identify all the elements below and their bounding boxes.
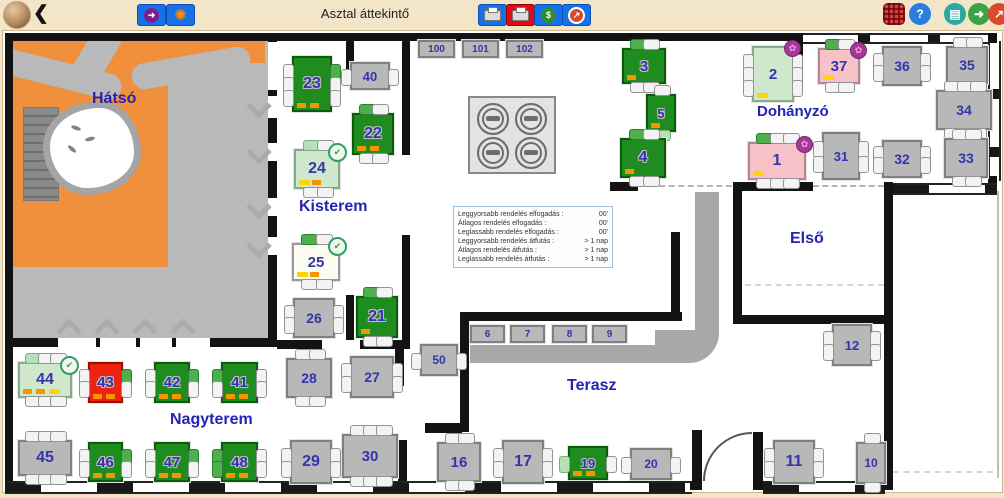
chair (864, 433, 881, 444)
chair (458, 480, 475, 491)
check-badge-icon: ✔ (328, 143, 347, 162)
chair (283, 90, 294, 107)
table-41[interactable]: 41 (221, 362, 258, 403)
table-101[interactable]: 101 (462, 40, 499, 58)
table-number: 100 (420, 42, 453, 56)
wall (692, 430, 702, 483)
order-mark-orange (36, 389, 45, 394)
chair (388, 69, 399, 86)
exit-door-icon[interactable]: ➜ (968, 3, 990, 25)
room-label-terasz: Terasz (567, 377, 617, 395)
printer-icon (484, 10, 501, 21)
table-number: 32 (884, 142, 920, 176)
chair (970, 81, 987, 92)
order-mark-orange (312, 180, 321, 185)
chair (212, 461, 223, 478)
table-number: 6 (472, 327, 503, 341)
chair (317, 187, 334, 198)
trend-circle-icon: ↗ (568, 7, 585, 24)
table-number: 8 (554, 327, 585, 341)
order-stats-box: Leggyorsabb rendelés elfogadás :00'Átlag… (453, 206, 613, 268)
order-mark-orange (586, 471, 595, 476)
table-32[interactable]: 32 (882, 140, 922, 178)
table-number: 27 (352, 358, 392, 396)
chair (79, 381, 90, 398)
chair (121, 381, 132, 398)
table-number: 36 (884, 48, 920, 84)
order-mark-orange (627, 75, 636, 80)
order-mark-orange (172, 473, 181, 478)
chair (456, 353, 467, 370)
user-avatar[interactable] (3, 1, 31, 29)
table-37[interactable]: ✿37 (818, 48, 860, 84)
chair (813, 461, 824, 478)
chair (256, 461, 267, 478)
table-46[interactable]: 46 (88, 442, 123, 482)
table-31[interactable]: 31 (822, 132, 860, 180)
back-chevron-icon: ❮ (33, 3, 49, 24)
page-title: Asztal áttekintő (270, 6, 460, 21)
stats-trend-icon[interactable]: ↗ (988, 3, 1004, 25)
wall (733, 315, 893, 324)
table-23[interactable]: 23 (292, 56, 332, 112)
table-2[interactable]: ✿2 (752, 46, 794, 102)
chair (458, 433, 475, 444)
walkway (655, 330, 719, 363)
door-arrow-icon: ➜ (144, 8, 159, 23)
table-number: 20 (632, 450, 670, 478)
chair (309, 396, 326, 407)
reservation-badge-icon: ✿ (796, 136, 813, 153)
order-mark-yellow (299, 180, 310, 185)
table-21[interactable]: 21 (356, 296, 398, 338)
chair (376, 336, 393, 347)
toolbar: ❮ ➜ ✺ Asztal áttekintő $ ↗ ? ▤ ➜ ↗ (0, 0, 1004, 29)
exit-arrow-glyph: ➜ (974, 7, 984, 21)
order-mark-orange (297, 103, 306, 108)
table-number: 30 (344, 436, 396, 476)
table-33[interactable]: 33 (944, 138, 988, 178)
chair (559, 456, 570, 473)
rosette-icon: ✺ (174, 8, 187, 23)
chair (79, 461, 90, 478)
chair (783, 178, 800, 189)
table-12[interactable]: 12 (832, 324, 872, 366)
chair (873, 65, 884, 82)
order-mark-yellow (753, 171, 764, 176)
walkway (470, 345, 660, 363)
badge-button[interactable]: ✺ (166, 4, 195, 26)
chair (284, 317, 295, 334)
table-45[interactable]: 45 (18, 440, 72, 476)
order-mark-orange (172, 394, 181, 399)
chair (392, 376, 403, 393)
passage-dashes (813, 185, 884, 187)
chair (376, 476, 393, 487)
order-mark-orange (226, 394, 235, 399)
chair (920, 157, 931, 174)
device-glyph: ▤ (949, 7, 960, 21)
table-number: 40 (352, 64, 388, 88)
stat-row: Átlagos rendelés elfogadás :00' (458, 219, 608, 228)
table-6[interactable]: 6 (470, 325, 505, 343)
order-mark-orange (239, 473, 248, 478)
check-badge-icon: ✔ (328, 237, 347, 256)
table-16[interactable]: 16 (437, 442, 481, 482)
table-48[interactable]: 48 (221, 442, 258, 482)
passage-dashes (745, 284, 884, 286)
table-7[interactable]: 7 (510, 325, 545, 343)
table-number: 35 (948, 48, 986, 82)
chair (838, 82, 855, 93)
order-mark-orange (226, 473, 235, 478)
stat-row: Átlagos rendelés átfutás :> 1 nap (458, 246, 608, 255)
chair (670, 457, 681, 474)
reservation-badge-icon: ✿ (850, 42, 867, 59)
chair (873, 157, 884, 174)
table-22[interactable]: 22 (352, 113, 394, 155)
table-36[interactable]: 36 (882, 46, 922, 86)
chair (372, 104, 389, 115)
wall (733, 182, 742, 324)
help-icon[interactable]: ? (909, 3, 931, 25)
table-8[interactable]: 8 (552, 325, 587, 343)
wall (988, 33, 997, 43)
chair (965, 129, 982, 140)
room-label-elso: Első (790, 230, 824, 248)
table-43[interactable]: 43 (88, 362, 123, 403)
chair (309, 349, 326, 360)
transfer-button[interactable]: ➜ (137, 4, 166, 26)
table-11[interactable]: 11 (773, 440, 815, 484)
chair (643, 39, 660, 50)
table-17[interactable]: 17 (502, 440, 544, 484)
table-47[interactable]: 47 (154, 442, 190, 482)
wall (671, 232, 680, 321)
table-number: 29 (292, 442, 330, 482)
chair (858, 156, 869, 173)
chair (330, 461, 341, 478)
table-29[interactable]: 29 (290, 440, 332, 484)
chair (643, 176, 660, 187)
entrance-door-opening (702, 481, 753, 490)
passage-dashes (893, 471, 993, 473)
table-100[interactable]: 100 (418, 40, 455, 58)
wall (5, 33, 13, 490)
table-number: 17 (504, 442, 542, 482)
table-25[interactable]: ✔25 (292, 243, 340, 281)
wall (425, 423, 462, 433)
window-wall (5, 481, 692, 494)
chair (823, 344, 834, 361)
order-mark-orange (370, 146, 379, 151)
reservation-badge-icon: ✿ (784, 40, 801, 57)
order-mark-yellow (297, 272, 308, 277)
order-mark-orange (310, 103, 319, 108)
printer-icon (512, 10, 529, 21)
chair (864, 482, 881, 493)
table-9[interactable]: 9 (592, 325, 627, 343)
chair (281, 461, 292, 478)
chair (212, 381, 223, 398)
table-number: 33 (946, 140, 986, 176)
order-mark-orange (361, 329, 370, 334)
table-number: 31 (824, 134, 858, 178)
print-blue-button[interactable] (478, 4, 507, 26)
stat-row: Leggyorsabb rendelés átfutás :> 1 nap (458, 237, 608, 246)
chair (50, 431, 67, 442)
order-mark-orange (106, 394, 115, 399)
wall (460, 312, 469, 432)
chair (188, 461, 199, 478)
wall (460, 312, 682, 321)
stove-icon (468, 96, 556, 174)
chart-button[interactable]: ↗ (562, 4, 591, 26)
chair (376, 425, 393, 436)
chair (606, 456, 617, 473)
chair (965, 176, 982, 187)
question-glyph: ? (916, 7, 923, 21)
order-mark-orange (239, 394, 248, 399)
order-mark-orange (310, 272, 319, 277)
table-10[interactable]: 10 (856, 442, 886, 484)
stat-row: Leglassabb rendelés átfutás :> 1 nap (458, 255, 608, 264)
trend-glyph: ↗ (994, 7, 1004, 21)
table-1[interactable]: ✿1 (748, 142, 806, 180)
floorplan: Hátsó (0, 0, 1004, 498)
table-102[interactable]: 102 (506, 40, 543, 58)
table-number: 45 (20, 442, 70, 474)
chair (372, 153, 389, 164)
wall (753, 432, 763, 490)
order-mark-orange (625, 169, 634, 174)
chair (813, 156, 824, 173)
order-mark-orange (651, 123, 660, 128)
table-number: 9 (594, 327, 625, 341)
chair (316, 279, 333, 290)
chair (792, 80, 803, 97)
table-24[interactable]: ✔24 (294, 149, 340, 189)
chair (145, 461, 156, 478)
order-mark-yellow (757, 93, 768, 98)
chair (493, 461, 504, 478)
room-label-dohanyzo: Dohányzó (757, 103, 829, 120)
table-number: 101 (464, 42, 497, 56)
order-mark-orange (159, 473, 168, 478)
room-label-nagyterem: Nagyterem (170, 411, 253, 429)
order-mark-orange (93, 473, 102, 478)
table-number: 11 (775, 442, 813, 482)
order-mark-yellow (823, 75, 834, 80)
chair (643, 129, 660, 140)
chair (376, 287, 393, 298)
cash-button[interactable]: $ (534, 4, 563, 26)
chair (50, 474, 67, 485)
door-opening (268, 42, 277, 90)
table-19[interactable]: 19 (568, 446, 608, 480)
chair (870, 344, 881, 361)
room-label-hatso: Hátsó (92, 90, 136, 108)
stat-row: Leggyorsabb rendelés elfogadás :00' (458, 210, 608, 219)
table-number: 7 (512, 327, 543, 341)
order-mark-orange (106, 473, 115, 478)
chair (333, 317, 344, 334)
chair (764, 461, 775, 478)
chair (341, 69, 352, 86)
print-red-button[interactable] (506, 4, 535, 26)
pond (43, 101, 141, 195)
chair (188, 381, 199, 398)
money-bag-icon: $ (541, 8, 556, 23)
table-number: 26 (295, 300, 333, 336)
chair (50, 396, 67, 407)
table-26[interactable]: 26 (293, 298, 335, 338)
table-35[interactable]: 35 (946, 46, 988, 84)
order-mark-orange (357, 146, 366, 151)
table-34[interactable]: 34 (936, 90, 992, 130)
room-label-kisterem: Kisterem (299, 198, 367, 216)
order-mark-orange (573, 471, 582, 476)
check-badge-icon: ✔ (60, 356, 79, 375)
devices-icon[interactable]: ▤ (944, 3, 966, 25)
table-grid-icon[interactable] (883, 3, 905, 25)
stat-row: Leglassabb rendelés elfogadás :00' (458, 228, 608, 237)
chair (542, 461, 553, 478)
table-number: 34 (938, 92, 990, 128)
chair (920, 65, 931, 82)
wall (402, 235, 410, 348)
table-number: 50 (422, 346, 456, 374)
table-5[interactable]: 5 (646, 94, 676, 132)
chair (121, 461, 132, 478)
order-mark-orange (93, 394, 102, 399)
order-mark-yellow (49, 389, 60, 394)
walkway (695, 192, 719, 332)
table-number: 102 (508, 42, 541, 56)
chair (256, 381, 267, 398)
chair (330, 90, 341, 107)
order-mark-orange (23, 389, 32, 394)
table-4[interactable]: 4 (620, 138, 666, 178)
chair (411, 353, 422, 370)
table-28[interactable]: 28 (286, 358, 332, 398)
table-number: 28 (288, 360, 330, 396)
door-opening (322, 340, 360, 349)
table-40[interactable]: 40 (350, 62, 390, 90)
table-42[interactable]: 42 (154, 362, 190, 403)
order-mark-orange (159, 394, 168, 399)
chair (966, 37, 983, 48)
chair (145, 381, 156, 398)
table-number: 10 (858, 444, 884, 482)
garden-area: Hátsó (13, 41, 268, 338)
table-3[interactable]: 3 (622, 48, 666, 84)
chair (621, 457, 632, 474)
table-50[interactable]: 50 (420, 344, 458, 376)
chair (743, 80, 754, 97)
wall (402, 33, 410, 155)
table-30[interactable]: 30 (342, 434, 398, 478)
back-button[interactable]: ❮ (33, 2, 49, 25)
table-number: 12 (834, 326, 870, 364)
table-number: 16 (439, 444, 479, 480)
table-44[interactable]: ✔44 (18, 362, 72, 398)
door-swing-arc (702, 431, 753, 482)
table-20[interactable]: 20 (630, 448, 672, 480)
chair (654, 85, 671, 96)
plan-border (997, 191, 999, 478)
table-27[interactable]: 27 (350, 356, 394, 398)
chair (341, 376, 352, 393)
